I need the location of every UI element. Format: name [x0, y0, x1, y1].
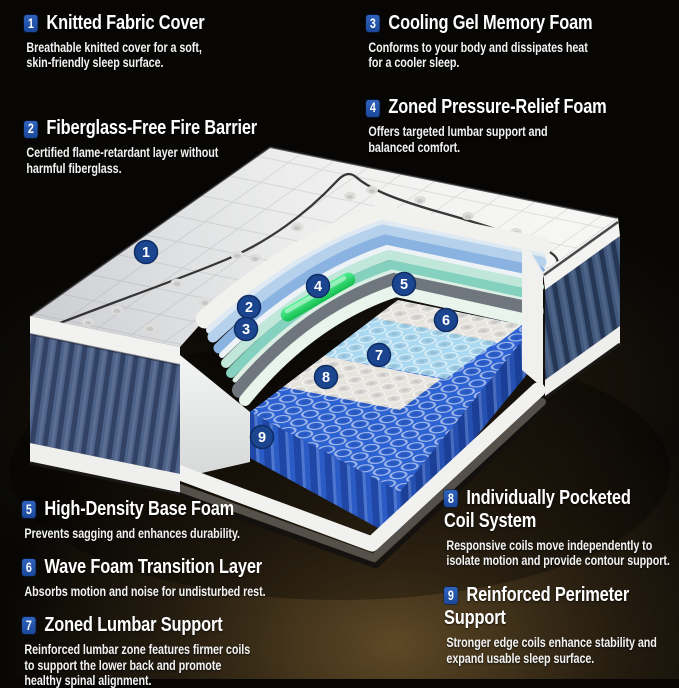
layer-badge-number-9: 9 — [258, 430, 266, 446]
callout-knitted-fabric-cover: 1Knitted Fabric Cover Breathable knitted… — [24, 12, 344, 70]
callout-title: 1Knitted Fabric Cover — [24, 12, 344, 35]
callouts-bottom-left: 5High-Density Base Foam Prevents sagging… — [22, 498, 442, 688]
layer-badge-number-5: 5 — [400, 277, 408, 293]
callout-wave-foam-transition-layer: 6Wave Foam Transition Layer Absorbs moti… — [22, 556, 358, 599]
layer-badge-number-8: 8 — [322, 370, 330, 386]
callout-title: 5High-Density Base Foam — [22, 498, 358, 521]
callout-reinforced-perimeter-support: 9Reinforced Perimeter Support Stronger e… — [444, 584, 679, 665]
callouts-bottom-right: 8Individually Pocketed Coil System Respo… — [444, 487, 679, 666]
layer-badge-number-3: 3 — [242, 322, 250, 338]
callout-title-text: Individually Pocketed Coil System — [444, 486, 631, 532]
number-badge: 4 — [366, 100, 380, 117]
layer-badge-number-4: 4 — [314, 279, 322, 295]
callout-description: Responsive coils move independently to i… — [446, 538, 679, 569]
number-badge: 6 — [22, 559, 36, 576]
layer-badge-number-7: 7 — [375, 348, 383, 364]
callout-fiberglass-free-fire-barrier: 2Fiberglass-Free Fire Barrier Certified … — [24, 117, 344, 175]
callout-title: 4Zoned Pressure-Relief Foam — [366, 96, 679, 119]
callout-description: Conforms to your body and dissipates hea… — [368, 40, 679, 71]
callout-title-text: Reinforced Perimeter Support — [444, 583, 629, 629]
layer-badge-number-2: 2 — [245, 300, 253, 316]
callout-high-density-base-foam: 5High-Density Base Foam Prevents sagging… — [22, 498, 358, 541]
callout-cooling-gel-memory-foam: 3Cooling Gel Memory Foam Conforms to you… — [366, 12, 679, 70]
number-badge: 1 — [24, 15, 38, 32]
callout-title-text: Knitted Fabric Cover — [46, 11, 204, 34]
callout-description: Prevents sagging and enhances durability… — [24, 526, 358, 541]
callout-title: 2Fiberglass-Free Fire Barrier — [24, 117, 344, 140]
callout-description: Offers targeted lumbar support and balan… — [368, 124, 679, 155]
callout-description: Absorbs motion and noise for undisturbed… — [24, 584, 358, 599]
number-badge: 3 — [366, 15, 380, 32]
callout-title: 3Cooling Gel Memory Foam — [366, 12, 679, 35]
callouts-top-right: 3Cooling Gel Memory Foam Conforms to you… — [366, 12, 679, 155]
layer-badge-number-6: 6 — [442, 313, 450, 329]
callouts-top-left: 1Knitted Fabric Cover Breathable knitted… — [24, 12, 424, 176]
callout-title-text: Fiberglass-Free Fire Barrier — [46, 116, 257, 139]
callout-description: Breathable knitted cover for a soft, ski… — [26, 40, 344, 71]
number-badge: 5 — [22, 501, 36, 518]
callout-title-text: High-Density Base Foam — [44, 497, 234, 520]
callout-title-text: Cooling Gel Memory Foam — [388, 11, 592, 34]
callout-title-text: Zoned Pressure-Relief Foam — [388, 95, 606, 118]
callout-title: 6Wave Foam Transition Layer — [22, 556, 358, 579]
callout-description: Certified flame-retardant layer without … — [26, 145, 344, 176]
left-side-panel — [30, 316, 180, 494]
callout-title: 8Individually Pocketed Coil System — [444, 487, 679, 533]
number-badge: 8 — [444, 490, 458, 507]
number-badge: 9 — [444, 587, 458, 604]
number-badge: 7 — [22, 617, 36, 634]
callout-zoned-pressure-relief-foam: 4Zoned Pressure-Relief Foam Offers targe… — [366, 96, 679, 154]
callout-description: Reinforced lumbar zone features firmer c… — [24, 642, 358, 688]
layer-badge-number-1: 1 — [142, 245, 150, 261]
callout-description: Stronger edge coils enhance stability an… — [446, 635, 679, 666]
callout-individually-pocketed-coil-system: 8Individually Pocketed Coil System Respo… — [444, 487, 679, 568]
infographic-stage: 123456789 1Knitted Fabric Cover Breathab… — [0, 0, 679, 679]
callout-title: 7Zoned Lumbar Support — [22, 614, 358, 637]
number-badge: 2 — [24, 121, 38, 138]
callout-zoned-lumbar-support: 7Zoned Lumbar Support Reinforced lumbar … — [22, 614, 358, 688]
callout-title-text: Wave Foam Transition Layer — [44, 555, 262, 578]
callout-title: 9Reinforced Perimeter Support — [444, 584, 679, 630]
callout-title-text: Zoned Lumbar Support — [44, 613, 222, 636]
